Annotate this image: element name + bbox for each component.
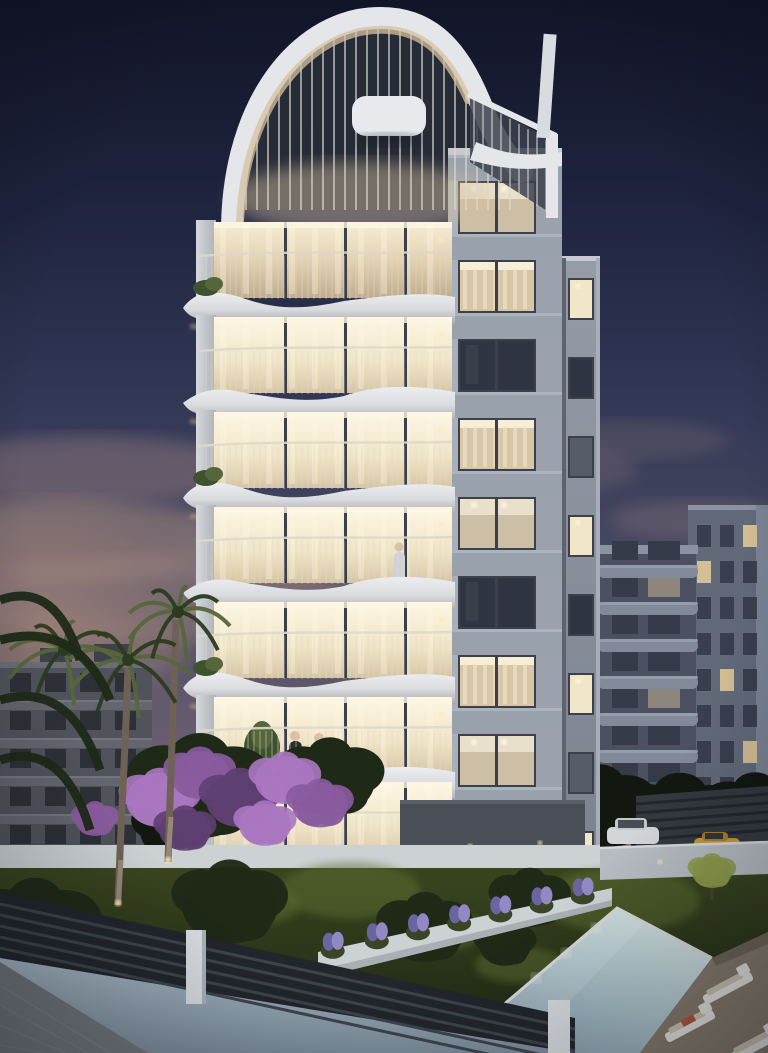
vignette	[0, 0, 768, 1053]
dusk-apartment-render	[0, 0, 768, 1053]
render-stage	[0, 0, 768, 1053]
